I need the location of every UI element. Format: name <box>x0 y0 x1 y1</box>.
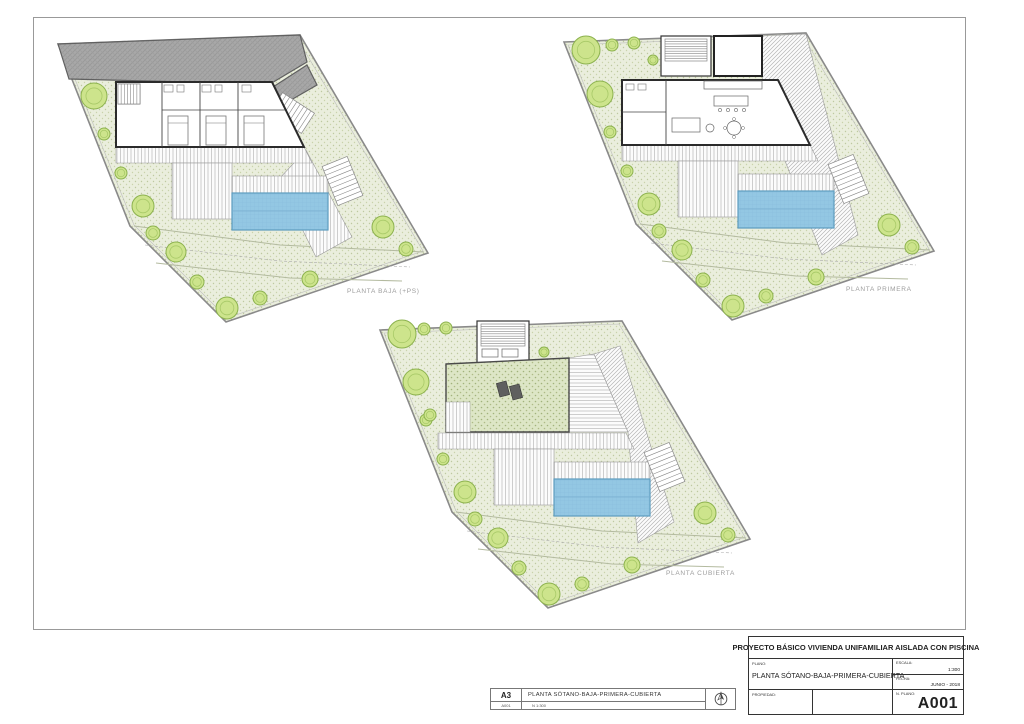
north-arrow-icon <box>712 690 730 708</box>
sheet-size: A3 <box>491 689 521 702</box>
title-block: PROYECTO BÁSICO VIVIENDA UNIFAMILIAR AIS… <box>748 636 964 715</box>
floor-plan-planta-cubierta: PLANTA CUBIERTA <box>372 316 772 616</box>
north-arrow-cell <box>706 689 735 709</box>
sheet-number-small: A001 <box>491 702 521 709</box>
plano-label: PLANO: <box>752 661 889 666</box>
plan-label-planta-cubierta: PLANTA CUBIERTA <box>666 570 735 577</box>
plan-drawing-planta-baja <box>50 30 450 330</box>
empty-cell <box>813 690 893 714</box>
strip-plan-title: PLANTA SÓTANO-BAJA-PRIMERA-CUBIERTA <box>522 689 705 702</box>
fecha-label: FECHA: <box>896 676 960 681</box>
plano-value: PLANTA SÓTANO-BAJA-PRIMERA-CUBIERTA <box>752 671 889 680</box>
drawing-sheet: { "title_strip": { "sheet_size": "A3", "… <box>0 0 1024 724</box>
escala-label: ESCALA: <box>896 660 960 665</box>
project-title: PROYECTO BÁSICO VIVIENDA UNIFAMILIAR AIS… <box>749 637 963 659</box>
floor-plan-planta-baja: PLANTA BAJA (+PS) <box>50 30 450 330</box>
propiedad-cell: PROPIEDAD: <box>749 690 813 714</box>
sheet-size-cell: A3 A001 <box>491 689 522 709</box>
propiedad-label: PROPIEDAD: <box>752 692 809 697</box>
plan-drawing-planta-primera <box>556 28 956 328</box>
plan-label-planta-baja: PLANTA BAJA (+PS) <box>347 288 420 295</box>
floor-plan-planta-primera: PLANTA PRIMERA <box>556 28 956 328</box>
sheet-info-strip: A3 A001 PLANTA SÓTANO-BAJA-PRIMERA-CUBIE… <box>490 688 736 710</box>
escala-value: 1:300 <box>948 668 960 673</box>
sheet-number: A001 <box>918 695 958 713</box>
fecha-value: JUNIO - 2018 <box>931 683 960 688</box>
strip-title-cell: PLANTA SÓTANO-BAJA-PRIMERA-CUBIERTA N 1:… <box>522 689 706 709</box>
fecha-cell: FECHA: JUNIO - 2018 <box>893 674 963 690</box>
nplano-cell: N. PLANO: A001 <box>893 690 963 714</box>
strip-scale-note: N 1:300 <box>522 702 705 709</box>
plano-cell: PLANO: PLANTA SÓTANO-BAJA-PRIMERA-CUBIER… <box>749 659 893 689</box>
plan-label-planta-primera: PLANTA PRIMERA <box>846 286 912 293</box>
escala-cell: ESCALA: 1:300 <box>893 659 963 674</box>
